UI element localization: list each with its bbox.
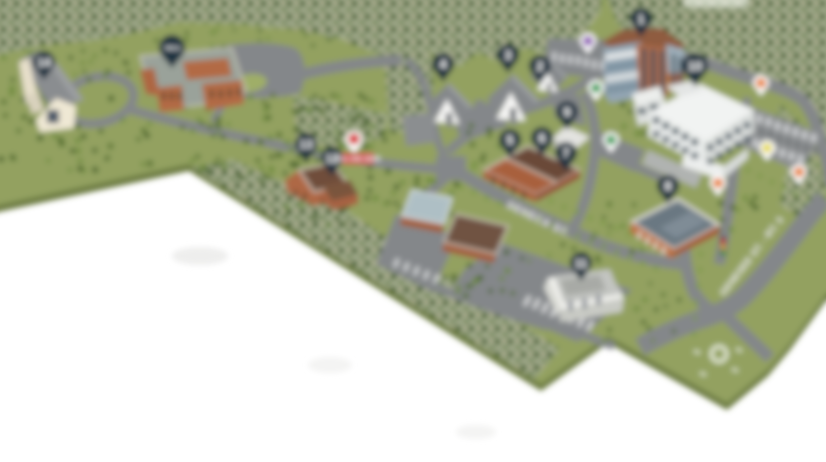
svg-text:2: 2: [536, 59, 543, 74]
svg-text:10: 10: [688, 59, 702, 74]
svg-text:1: 1: [637, 12, 644, 27]
svg-text:11: 11: [575, 256, 588, 270]
svg-text:13: 13: [299, 137, 313, 151]
svg-text:3: 3: [504, 48, 511, 63]
svg-text:5: 5: [506, 133, 513, 148]
svg-text:YOU ARE HERE: YOU ARE HERE: [335, 157, 380, 163]
svg-text:8: 8: [664, 179, 671, 194]
svg-text:4: 4: [439, 57, 447, 72]
svg-text:14: 14: [37, 55, 51, 69]
svg-text:7: 7: [562, 146, 569, 161]
svg-text:YMCA: YMCA: [164, 46, 180, 52]
svg-text:9: 9: [563, 105, 570, 120]
svg-text:6: 6: [538, 131, 545, 146]
